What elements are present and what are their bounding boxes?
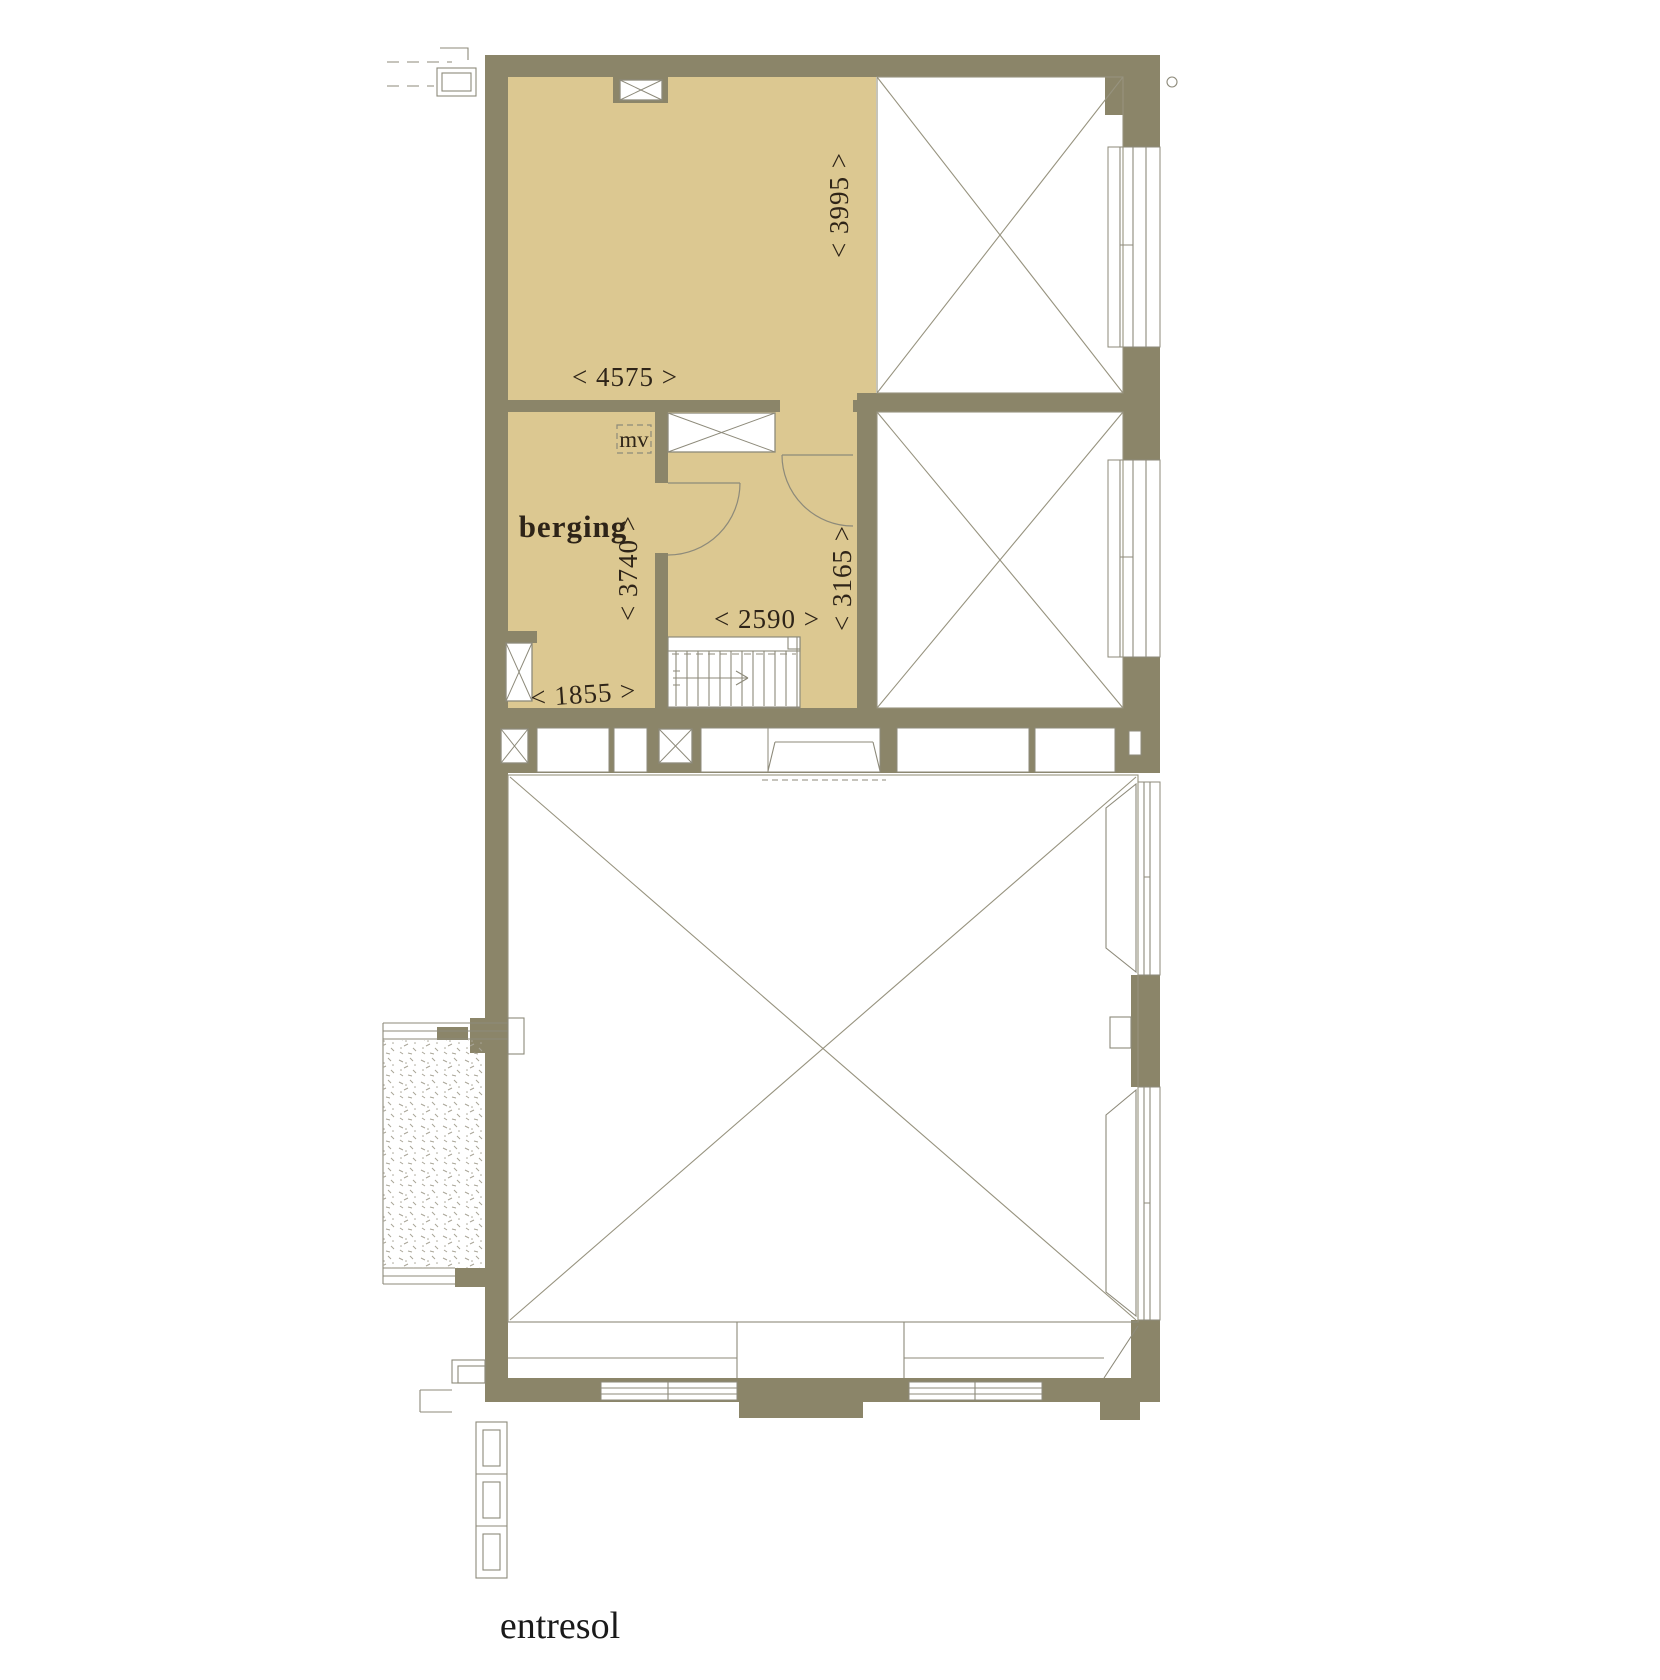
box-column [476, 1422, 507, 1578]
wall-segment [437, 1027, 468, 1040]
dim-stair-hall-width: < 2590 > [714, 604, 820, 634]
corner-marker [1167, 77, 1177, 87]
shutter-panel-1 [1106, 784, 1136, 972]
wall-segment [455, 1268, 485, 1287]
corner-detail [458, 1366, 485, 1383]
opening [1035, 728, 1115, 772]
opening [614, 728, 647, 772]
wall-segment [1123, 347, 1160, 460]
floor-plan-svg: < 4575 > < 3995 > < 3740 > < 3165 > < 25… [0, 0, 1660, 1680]
window-bottom-left [601, 1382, 737, 1400]
mv-label: mv [619, 427, 649, 452]
wall-segment [739, 1402, 863, 1418]
wall-niche-box [1110, 1017, 1131, 1048]
wall-segment [655, 412, 668, 483]
corner-detail-lines [420, 1390, 452, 1412]
dim-stair-hall-depth: < 3165 > [827, 525, 857, 631]
opening [537, 728, 609, 772]
terrace-door-box [508, 1018, 524, 1054]
wall-segment [485, 55, 508, 708]
opening [768, 728, 880, 772]
floor-title: entresol [500, 1605, 620, 1647]
window-right-middle [1108, 460, 1160, 657]
floor-plan-page: < 4575 > < 3995 > < 3740 > < 3165 > < 25… [0, 0, 1660, 1680]
wall-segment [485, 400, 780, 412]
terrace-stipple [383, 1040, 483, 1268]
dim-top-room-depth: < 3995 > [824, 152, 854, 258]
wall-segment [857, 412, 877, 708]
opening [701, 728, 768, 772]
wall-segment [485, 708, 508, 1402]
wall-segment [485, 708, 1160, 727]
wall-segment [1123, 657, 1160, 773]
void-room-1-cross [877, 77, 1123, 393]
staircase [668, 637, 800, 708]
wall-segment [857, 393, 1160, 412]
wall-segment [1105, 55, 1160, 115]
stair-post [788, 637, 800, 649]
corner-detail [452, 1360, 485, 1383]
window-right-lower-1 [1138, 782, 1160, 975]
room-label-berging: berging [519, 509, 628, 544]
floor-fills [508, 77, 876, 708]
wall-segment [1123, 115, 1160, 147]
service-line [440, 48, 468, 60]
shutter-panel-2 [1106, 1090, 1136, 1316]
door-opening-floor [780, 400, 853, 412]
window-right-upper [1108, 147, 1160, 347]
wall-segment [1131, 1320, 1160, 1402]
void-room-2-cross [877, 412, 1123, 708]
opening [897, 728, 1029, 772]
wall-segment [655, 553, 668, 708]
stair-area [668, 637, 800, 708]
wall-segment [1131, 975, 1160, 1087]
main-room-cross [510, 777, 1136, 1320]
service-box [437, 68, 476, 96]
sill-band [508, 1322, 1138, 1378]
dim-top-room-width: < 4575 > [572, 362, 678, 392]
top-room-floor [508, 77, 876, 402]
opening [1129, 731, 1141, 755]
wall-segment [504, 631, 537, 643]
wall-segment [485, 55, 1160, 77]
